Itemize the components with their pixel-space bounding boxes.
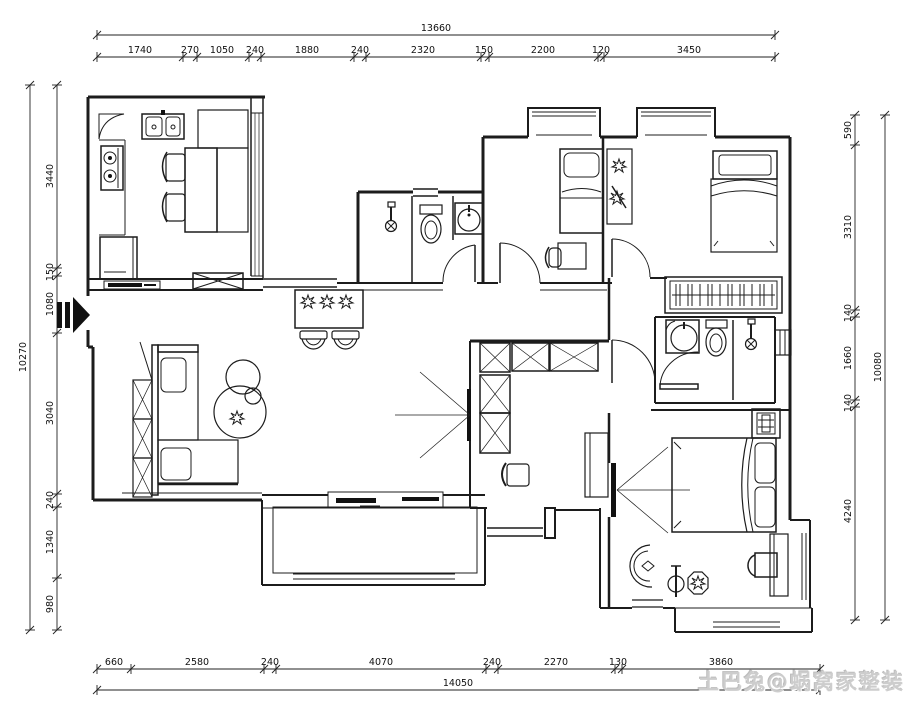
- dining-chair: [163, 152, 186, 182]
- double-bed-icon: [672, 438, 776, 532]
- single-bed-icon: [560, 149, 603, 233]
- living-room: [133, 290, 443, 508]
- shoe-cabinet-icon: [193, 273, 243, 289]
- svg-text:1080: 1080: [45, 292, 56, 316]
- svg-text:240: 240: [45, 491, 56, 509]
- shoe-bench-icon: [104, 281, 160, 289]
- entry-arrow-bar: [65, 302, 70, 328]
- counter-corner: [99, 114, 124, 139]
- bar-counter: [295, 290, 363, 328]
- svg-text:3310: 3310: [843, 215, 854, 239]
- svg-text:590: 590: [843, 121, 854, 139]
- floor-plan-canvas: 13660 1740 270 1050 240 1880 240 2320 15…: [0, 0, 913, 712]
- bathroom-1: [386, 202, 484, 243]
- coffee-table-icon: [214, 360, 266, 438]
- svg-text:120: 120: [592, 45, 610, 56]
- shower-icon: [386, 202, 397, 232]
- master-hall-door: [612, 340, 655, 383]
- svg-text:1050: 1050: [210, 45, 234, 56]
- bedroom-3: [607, 149, 782, 313]
- water-heater-icon: [752, 409, 780, 438]
- svg-text:270: 270: [181, 45, 199, 56]
- svg-text:2320: 2320: [411, 45, 435, 56]
- kitchen: [99, 110, 248, 289]
- tv-icon: [611, 447, 690, 533]
- entry-arrow-icon: [73, 297, 90, 333]
- wardrobe-icon: [665, 277, 782, 313]
- svg-text:2270: 2270: [544, 657, 568, 668]
- floor-lamp-icon: [668, 566, 684, 597]
- toilet-icon: [420, 205, 442, 243]
- svg-text:2580: 2580: [185, 657, 209, 668]
- desk-icon: [546, 243, 587, 269]
- sink-icon: [142, 110, 184, 139]
- svg-text:140: 140: [843, 304, 854, 322]
- dimension-top: 13660 1740 270 1050 240 1880 240 2320 15…: [93, 23, 779, 62]
- svg-text:660: 660: [105, 657, 123, 668]
- dimension-left: 10270 3440 150 1080 3040 240 1340 980: [18, 81, 62, 634]
- svg-text:3440: 3440: [45, 164, 56, 188]
- svg-text:1880: 1880: [295, 45, 319, 56]
- kitchen-cabinet: [217, 148, 248, 232]
- entry-arrow-bar: [57, 302, 62, 328]
- bar-stool-icon: [332, 331, 359, 349]
- doors: [443, 239, 698, 389]
- tv-icon: [395, 372, 471, 458]
- bathroom-2: [666, 319, 791, 438]
- svg-text:240: 240: [483, 657, 501, 668]
- desk-icon: [585, 433, 608, 497]
- floor-plan-drawing: 13660 1740 270 1050 240 1880 240 2320 15…: [0, 0, 913, 712]
- bathroom-1-door: [443, 245, 475, 282]
- tv-cabinet-icon: [328, 492, 443, 508]
- watermark-text: 土巴兔@蜗窝家整装: [698, 666, 905, 696]
- dim-right-total: 10080: [873, 352, 884, 382]
- plant-pot-icon: [688, 572, 708, 594]
- master-bedroom: [611, 438, 788, 597]
- stool-icon: [748, 553, 777, 577]
- svg-text:240: 240: [246, 45, 264, 56]
- bar-stool-icon: [300, 331, 327, 349]
- svg-text:1740: 1740: [128, 45, 152, 56]
- svg-text:1660: 1660: [843, 346, 854, 370]
- dining-table: [185, 148, 217, 232]
- stove-icon: [101, 146, 123, 190]
- single-bed-icon: [711, 151, 777, 252]
- svg-text:980: 980: [45, 595, 56, 613]
- svg-text:3450: 3450: [677, 45, 701, 56]
- bedroom-3-door: [612, 239, 650, 277]
- dim-left-total: 10270: [18, 342, 29, 372]
- svg-text:4070: 4070: [369, 657, 393, 668]
- walls: [88, 97, 812, 632]
- study-area: [395, 343, 608, 497]
- entry: [57, 297, 90, 333]
- chair-icon: [502, 463, 529, 486]
- svg-text:240: 240: [261, 657, 279, 668]
- svg-text:2200: 2200: [531, 45, 555, 56]
- kitchen-cabinet: [198, 110, 248, 148]
- side-cabinet-icon: [133, 342, 152, 497]
- svg-text:1340: 1340: [45, 530, 56, 554]
- dim-bottom-total: 14050: [443, 678, 473, 689]
- svg-text:4240: 4240: [843, 499, 854, 523]
- dining-chair: [163, 192, 186, 222]
- dresser-icon: [770, 534, 788, 596]
- dimension-right: 10080 590 3310 140 1660 140 4240: [843, 111, 890, 624]
- bedroom-2-door: [500, 243, 540, 283]
- svg-text:130: 130: [609, 657, 627, 668]
- lounge-chair-icon: [630, 545, 654, 587]
- sofa-icon: [152, 345, 238, 495]
- wardrobe-cabinet-icon: [480, 343, 598, 453]
- svg-text:140: 140: [843, 394, 854, 412]
- plant-shelf: [607, 149, 632, 224]
- fridge-icon: [100, 237, 137, 279]
- bedroom-2: [546, 149, 604, 269]
- svg-text:150: 150: [45, 263, 56, 281]
- basin-icon: [666, 320, 699, 353]
- bathroom-2-door: [660, 352, 698, 389]
- shower-icon: [746, 319, 757, 350]
- basin-icon: [455, 203, 483, 234]
- svg-text:240: 240: [351, 45, 369, 56]
- toilet-icon: [706, 320, 727, 356]
- svg-text:150: 150: [475, 45, 493, 56]
- svg-text:3040: 3040: [45, 401, 56, 425]
- dim-top-total: 13660: [421, 23, 451, 34]
